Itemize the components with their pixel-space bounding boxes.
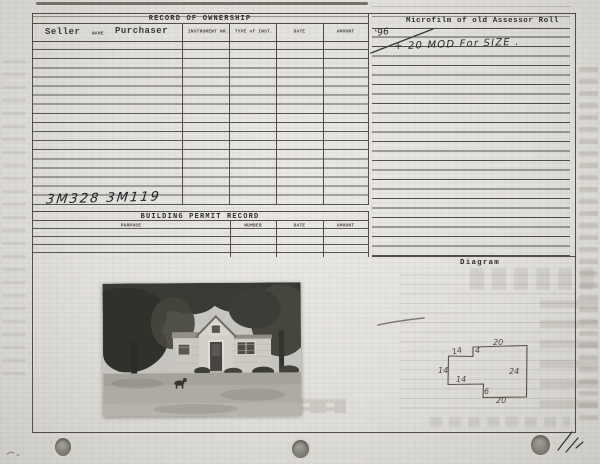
ownership-handwritten-entry: 3M328 3M119 xyxy=(45,189,161,207)
ownership-col-amount: AMOUNT xyxy=(329,29,363,34)
sketch-dim-step-top: 4 xyxy=(475,346,480,355)
card-right-border xyxy=(575,13,576,433)
card-top-border xyxy=(32,13,576,14)
scan-edge-artifact xyxy=(36,2,368,5)
sketch-dim-wing-left: 14 xyxy=(438,366,448,375)
footprint-sketch: 4 20 14 14 14 6 20 24 xyxy=(438,336,544,406)
sketch-dim-wing-bottom: 14 xyxy=(456,375,466,384)
permit-ruled-rows xyxy=(32,221,368,257)
sketch-dim-right: 24 xyxy=(509,367,519,376)
column-divider xyxy=(229,23,230,205)
column-divider xyxy=(230,220,231,257)
binder-hole xyxy=(531,435,550,455)
pen-scribble xyxy=(552,428,586,454)
sketch-dim-wing-top: 14 xyxy=(451,345,463,356)
sketch-dim-step-bottom: 6 xyxy=(484,387,489,396)
ownership-purchaser-label: Purchaser xyxy=(115,26,168,36)
ownership-seller-label: Seller xyxy=(45,27,80,37)
column-divider xyxy=(276,23,277,205)
scan-edge-artifact xyxy=(372,6,572,7)
sketch-dim-top: 20 xyxy=(493,338,503,347)
sketch-dim-bottom: 20 xyxy=(496,396,506,405)
ownership-col-type: TYPE of INST. xyxy=(235,29,270,34)
diagram-top-border xyxy=(372,256,575,257)
column-divider xyxy=(182,23,183,205)
ownership-ruled-rows xyxy=(32,41,368,205)
microfilm-title: Microfilm of old Assessor Roll xyxy=(390,17,575,25)
ownership-col-instrument: INSTRUMENT NR. xyxy=(188,29,223,34)
pencil-mark-corner xyxy=(5,446,25,458)
pen-stroke-artifact xyxy=(376,314,428,328)
column-divider xyxy=(323,220,324,257)
house-photo-image xyxy=(103,282,302,416)
bleedthrough-bottom-right xyxy=(430,417,570,427)
bleedthrough-right-edge xyxy=(579,60,598,420)
microfilm-ruled-rows xyxy=(372,28,570,256)
permit-right-border xyxy=(368,211,369,257)
ownership-name-label: NAME xyxy=(92,31,104,36)
card-bottom-border xyxy=(32,432,576,433)
bleedthrough-left-margin xyxy=(2,50,26,380)
assessor-record-card-scan: RECORD OF OWNERSHIP Seller NAME Purchase… xyxy=(0,0,600,464)
house-photo xyxy=(103,282,302,416)
binder-hole xyxy=(292,440,309,458)
column-divider xyxy=(323,23,324,205)
ownership-title: RECORD OF OWNERSHIP xyxy=(32,15,368,23)
ownership-col-date: DATE xyxy=(282,29,317,34)
binder-hole xyxy=(55,438,71,456)
ownership-title-underline xyxy=(32,23,368,24)
column-divider xyxy=(276,220,277,257)
